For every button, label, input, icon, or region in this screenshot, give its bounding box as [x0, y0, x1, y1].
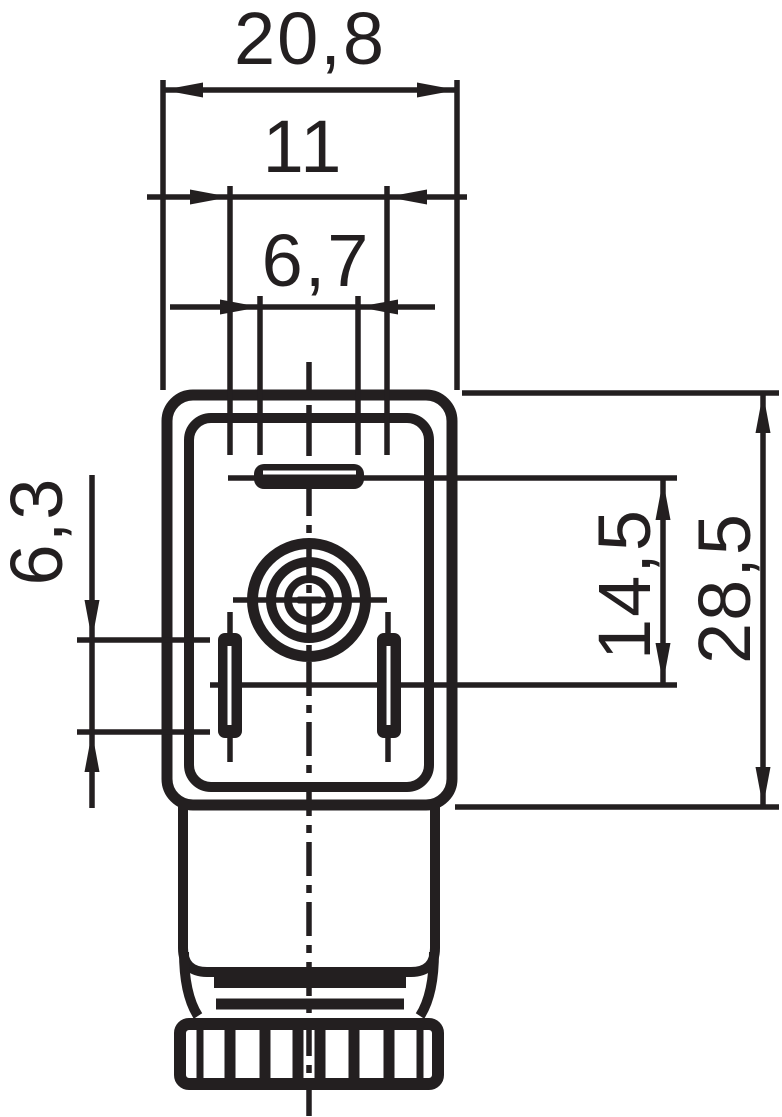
dim-label-side-slot-length: 6,3: [0, 477, 78, 586]
arrowhead: [387, 190, 427, 205]
dim-label-outer-width: 20,8: [234, 0, 386, 80]
dim-label-center-slot-width: 6,7: [262, 219, 371, 302]
arrowhead: [756, 393, 771, 433]
arrowhead: [417, 83, 457, 98]
dim-label-contact-field-height: 14,5: [583, 508, 666, 660]
arrowhead: [220, 300, 260, 315]
arrowhead: [85, 600, 100, 640]
arrowhead: [190, 190, 230, 205]
dim-label-body-height: 28,5: [683, 512, 766, 664]
dim-side-slot-length: 6,3: [0, 475, 210, 808]
connector-dimension-drawing: 20,8 11 6,7 6,3: [0, 0, 782, 1117]
arrowhead: [756, 767, 771, 807]
arrowhead: [85, 732, 100, 772]
top-contact-slot: [254, 464, 364, 489]
arrowhead: [163, 83, 203, 98]
technical-drawing-page: 20,8 11 6,7 6,3: [0, 0, 782, 1117]
screw-slot-mark: [297, 597, 322, 604]
dim-label-contact-spacing: 11: [263, 105, 344, 188]
dim-contact-field-height: 14,5: [583, 480, 671, 683]
